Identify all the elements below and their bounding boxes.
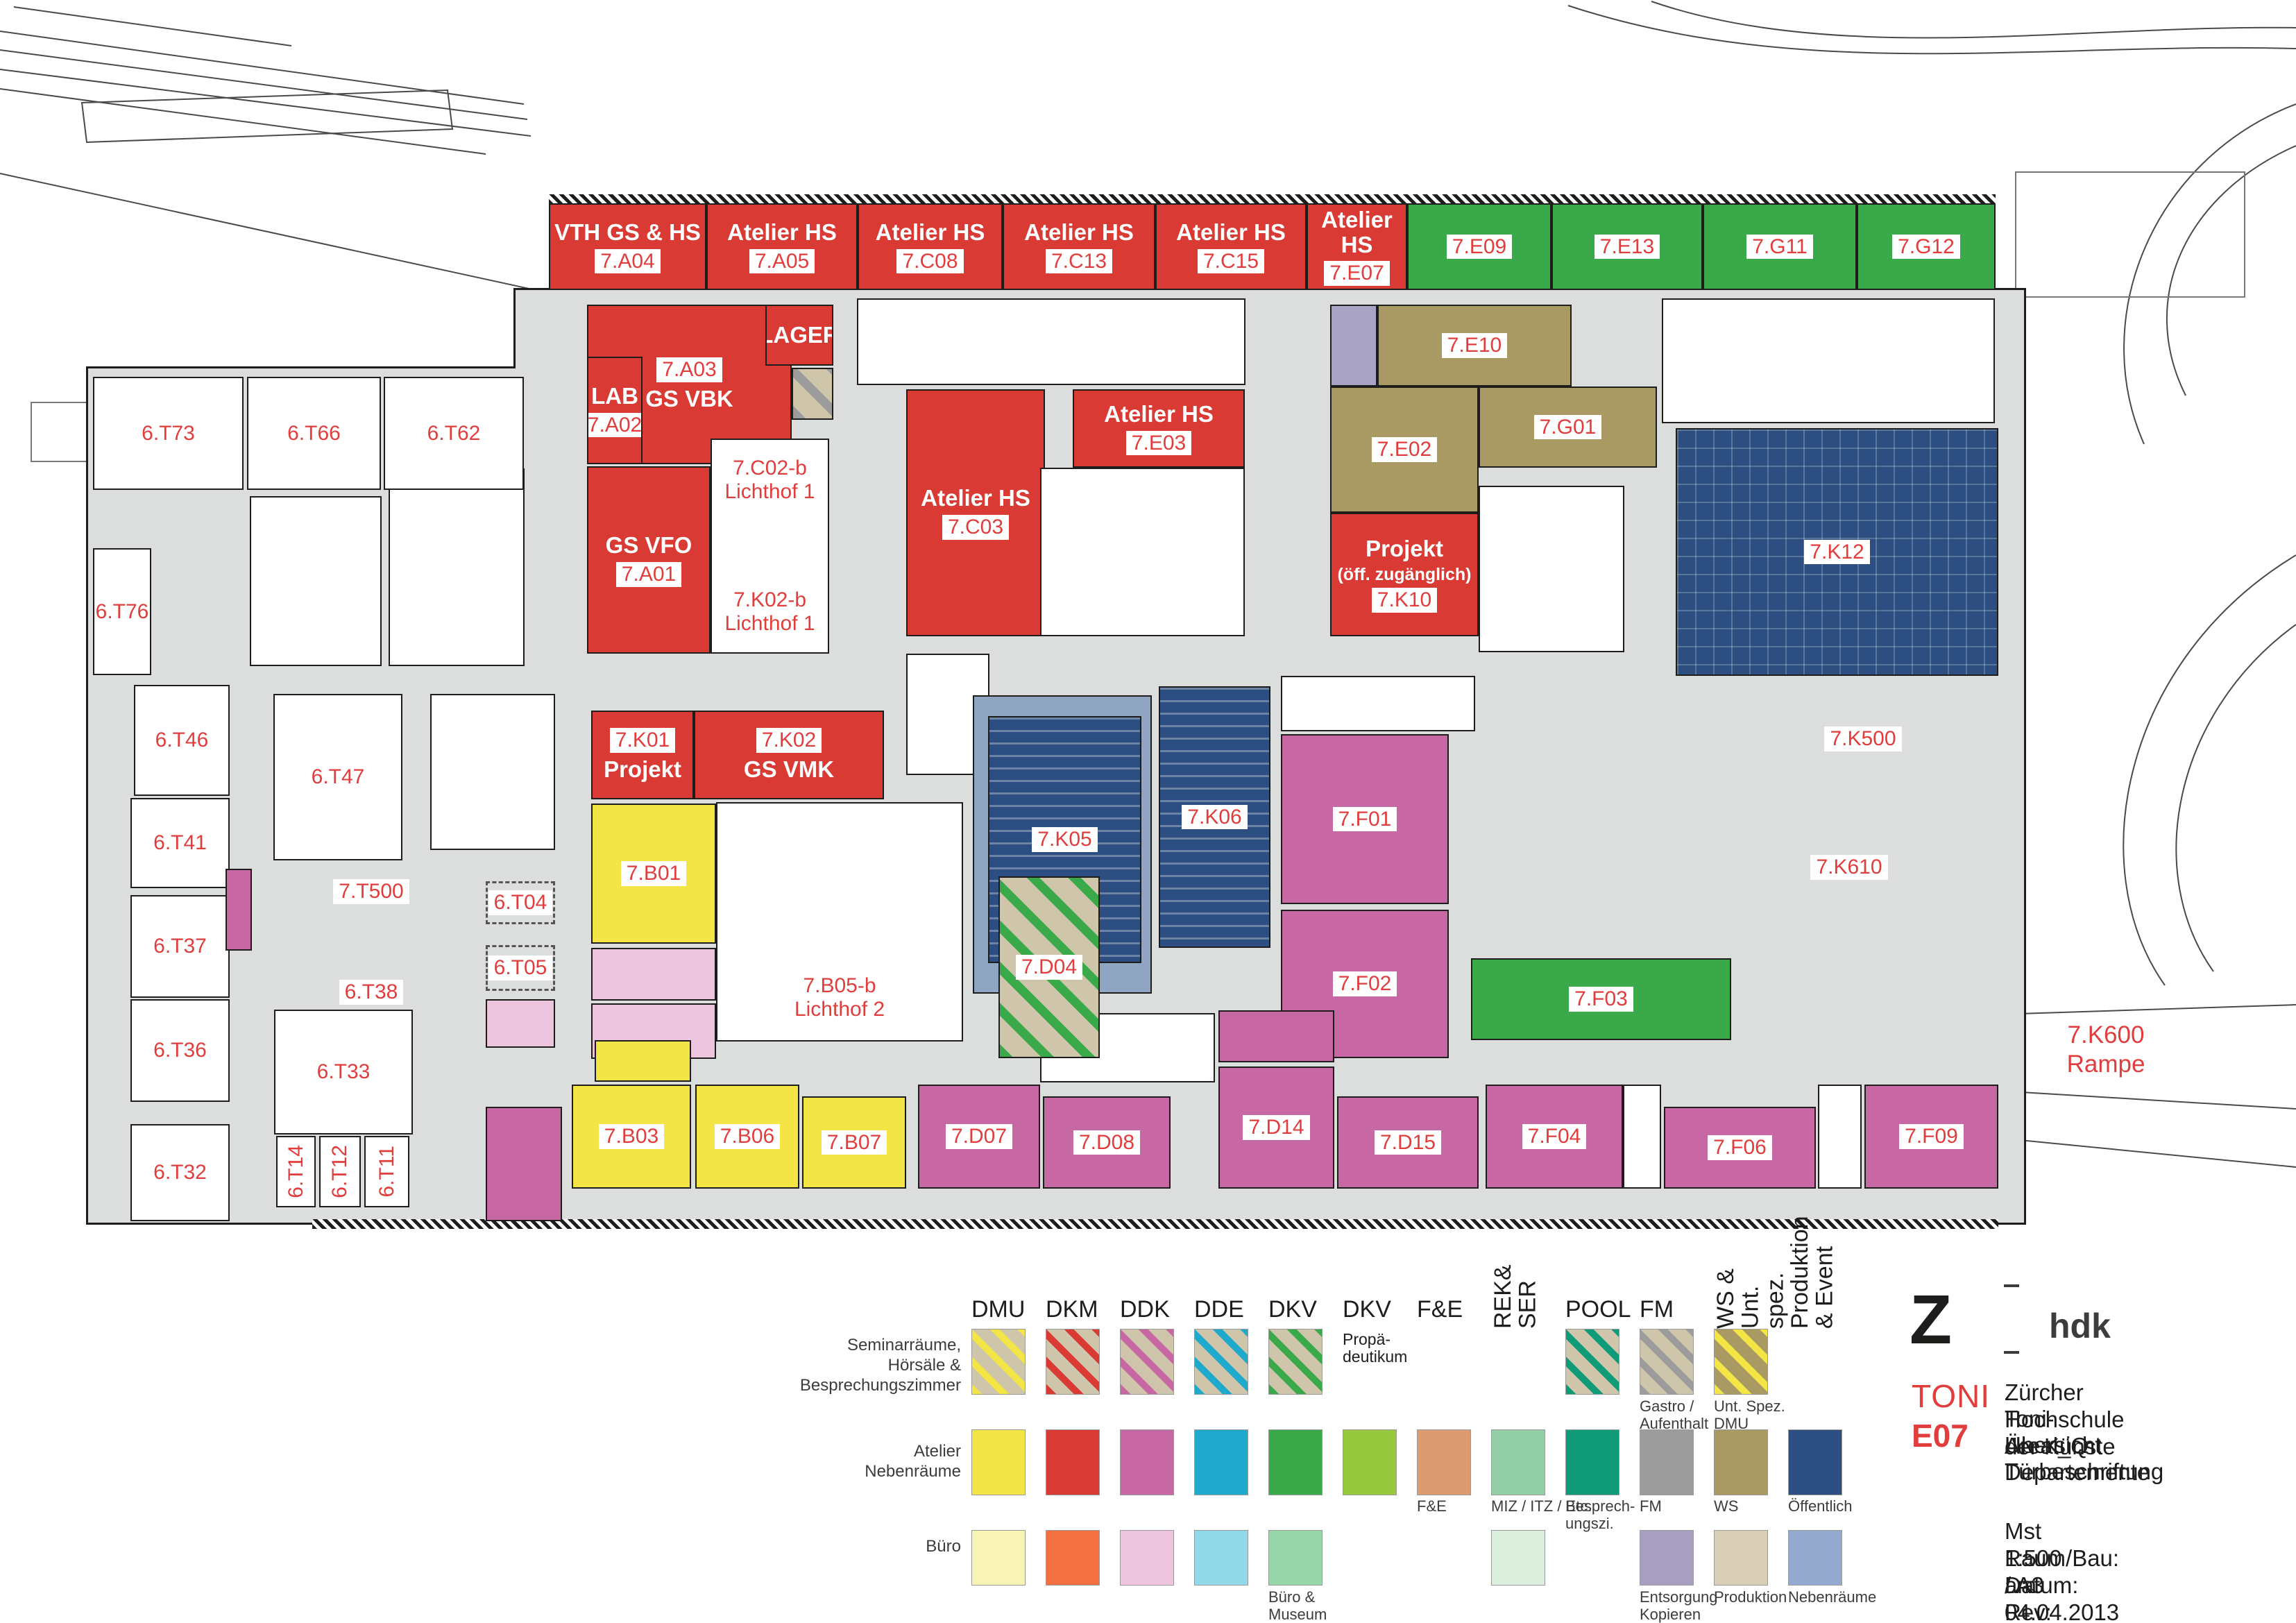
room-7-k600: 7.K600 Rampe xyxy=(2012,1010,2200,1089)
room-number: 6.T04 xyxy=(488,890,553,915)
legend-swatch-atelier xyxy=(1640,1429,1694,1495)
room-6-t05: 6.T05 xyxy=(486,945,555,991)
legend-swatch-buero xyxy=(1046,1530,1100,1586)
legend-header: POOL xyxy=(1565,1298,1631,1323)
room-lager: LAGER xyxy=(765,305,833,366)
legend-swatch-sub: Öffentlich xyxy=(1788,1497,1892,1515)
legend-swatch-striped xyxy=(971,1329,1026,1395)
room-name: Projekt xyxy=(1366,536,1443,561)
room-number: 6.T12 xyxy=(328,1139,352,1204)
unlabeled-room xyxy=(591,948,716,1001)
room-7-d08: 7.D08 xyxy=(1043,1096,1171,1189)
legend-swatch-atelier xyxy=(1343,1429,1397,1495)
room-7-t500: 7.T500 xyxy=(291,867,451,916)
unlabeled-room xyxy=(1330,305,1377,386)
plan-subtitle-2: Türbeschriftung xyxy=(2005,1459,2163,1486)
room-7-e10: 7.E10 xyxy=(1377,305,1572,386)
room-number: 7.B03 xyxy=(599,1124,664,1149)
room-name: LAB xyxy=(591,384,638,409)
room-number: 7.B05-b Lichthof 2 xyxy=(789,974,890,1021)
room-number: 7.E03 xyxy=(1126,431,1191,456)
room-number: 7.G12 xyxy=(1892,235,1960,260)
legend-swatch-buero xyxy=(1714,1530,1768,1586)
legend-swatch-buero xyxy=(1491,1530,1545,1586)
room-number: 7.B07 xyxy=(822,1130,887,1155)
room-7-b05-b: 7.B05-b Lichthof 2 xyxy=(716,965,963,1030)
room-6-t11: 6.T11 xyxy=(364,1136,409,1207)
legend-swatch-atelier xyxy=(1565,1429,1619,1495)
zhdk-logo: Z xyxy=(1910,1292,1949,1348)
room-7-f09: 7.F09 xyxy=(1864,1085,1998,1189)
room-number: 6.T73 xyxy=(136,421,201,446)
room-number: 6.T33 xyxy=(312,1060,376,1085)
room-7-k12: 7.K12 xyxy=(1676,428,1998,676)
room-number: 7.F03 xyxy=(1569,987,1633,1012)
room-7-e03: Atelier HS7.E03 xyxy=(1073,389,1245,468)
room-number: 7.G01 xyxy=(1534,415,1602,440)
room-6-t47: 6.T47 xyxy=(273,694,402,860)
room-name: 7.K600 Rampe xyxy=(2067,1021,2145,1079)
room-7-g11: 7.G11 xyxy=(1703,203,1857,290)
room-6-t76: 6.T76 xyxy=(93,548,151,675)
room-7-f01: 7.F01 xyxy=(1281,734,1449,904)
room-number: 7.E02 xyxy=(1372,437,1437,462)
room-number: 7.G11 xyxy=(1746,235,1813,260)
legend-header: DKM xyxy=(1046,1298,1098,1323)
room-7-e02: 7.E02 xyxy=(1330,386,1479,513)
room-number: 7.C02-b Lichthof 1 xyxy=(719,456,820,504)
room-name: GS VMK xyxy=(744,757,834,782)
room-number: 7.D08 xyxy=(1073,1130,1140,1155)
core-room xyxy=(1662,298,1995,423)
room-7-a04: VTH GS & HS7.A04 xyxy=(549,203,706,290)
room-name: GS VFO xyxy=(606,533,692,558)
room-7-g01: 7.G01 xyxy=(1479,386,1657,468)
room-7-a01: GS VFO7.A01 xyxy=(587,466,711,654)
room-7-c13: Atelier HS7.C13 xyxy=(1003,203,1155,290)
legend-swatch-striped xyxy=(1640,1329,1694,1395)
room-name: LAGER xyxy=(765,323,833,348)
room-number: 7.F02 xyxy=(1333,971,1397,996)
room-7-k610: 7.K610 xyxy=(1762,843,1936,892)
room-number: 7.D04 xyxy=(1016,955,1082,980)
room-number: 7.A01 xyxy=(616,562,681,587)
legend-row-label: Atelier Nebenräume xyxy=(732,1442,961,1482)
room-number: 7.F01 xyxy=(1333,807,1397,832)
room-number: 7.E09 xyxy=(1447,235,1512,260)
legend-header: DKV xyxy=(1268,1298,1317,1323)
legend-swatch-striped xyxy=(1565,1329,1619,1395)
room-6-t38: 6.T38 xyxy=(291,968,451,1017)
room-number: 7.A02 xyxy=(587,413,643,438)
room-number: 7.K12 xyxy=(1804,540,1869,565)
room-6-t37: 6.T37 xyxy=(130,895,230,998)
core-room xyxy=(1281,676,1475,731)
room-number: 6.T76 xyxy=(93,600,151,624)
room-7-f06: 7.F06 xyxy=(1664,1107,1816,1189)
room-7-k10: Projekt(öff. zugänglich)7.K10 xyxy=(1330,513,1479,636)
room-number: 7.T500 xyxy=(333,879,409,904)
room-7-c08: Atelier HS7.C08 xyxy=(858,203,1003,290)
legend-swatch-striped xyxy=(1268,1329,1323,1395)
legend-swatch-atelier xyxy=(1491,1429,1545,1495)
legend-swatch-atelier xyxy=(1788,1429,1842,1495)
room-7-d04: 7.D04 xyxy=(998,876,1100,1058)
legend-header: DDE xyxy=(1194,1298,1244,1323)
legend-header: FM xyxy=(1640,1298,1674,1323)
legend-swatch-striped xyxy=(1120,1329,1174,1395)
legend-row-label: Seminarräume, Hörsäle & Besprechungszimm… xyxy=(732,1336,961,1395)
room-number: 7.C08 xyxy=(896,249,963,274)
room-name: Atelier HS xyxy=(1104,402,1214,427)
legend-swatch-buero xyxy=(1640,1530,1694,1586)
room-6-t46: 6.T46 xyxy=(134,685,230,796)
core-room xyxy=(250,496,382,666)
unlabeled-room xyxy=(595,1040,691,1082)
core-room xyxy=(1818,1085,1862,1189)
core-room xyxy=(430,694,555,850)
room-number: 6.T46 xyxy=(150,728,214,753)
room-number: 7.B06 xyxy=(715,1124,780,1149)
room-6-t62: 6.T62 xyxy=(384,377,524,490)
room-number: 7.A05 xyxy=(749,249,815,274)
room-number: 6.T11 xyxy=(375,1140,400,1203)
room-number: 7.D07 xyxy=(946,1124,1012,1149)
room-7-k02-b: 7.K02-b Lichthof 1 xyxy=(711,583,829,641)
room-7-f04: 7.F04 xyxy=(1486,1085,1623,1189)
legend-swatch-buero xyxy=(1788,1530,1842,1586)
room-number: 7.F04 xyxy=(1522,1124,1587,1149)
room-7-k02: 7.K02GS VMK xyxy=(694,711,884,799)
room-6-t73: 6.T73 xyxy=(93,377,244,490)
room-name: Atelier HS xyxy=(727,220,837,245)
room-number: 7.K05 xyxy=(1032,827,1097,852)
room-number: 7.E13 xyxy=(1595,235,1660,260)
room-7-b01: 7.B01 xyxy=(591,804,716,944)
room-6-t41: 6.T41 xyxy=(130,798,230,888)
floor-code: E07 xyxy=(1912,1417,1968,1454)
room-number: 7.E10 xyxy=(1442,333,1507,358)
unlabeled-room xyxy=(792,368,833,420)
room-name: (öff. zugänglich) xyxy=(1337,566,1471,584)
room-7-b07: 7.B07 xyxy=(802,1096,906,1189)
legend-swatch-atelier xyxy=(1120,1429,1174,1495)
room-name: Atelier HS xyxy=(921,486,1030,511)
unlabeled-room xyxy=(486,1107,562,1221)
railway-tracks xyxy=(0,7,548,293)
unlabeled-room xyxy=(486,999,555,1048)
room-number: 6.T66 xyxy=(282,421,346,446)
room-6-t36: 6.T36 xyxy=(130,999,230,1102)
room-number: 7.K01 xyxy=(610,728,675,753)
room-7-k01: 7.K01Projekt xyxy=(591,711,694,799)
room-7-d15: 7.D15 xyxy=(1337,1096,1479,1189)
room-name: Projekt xyxy=(604,757,681,782)
legend-swatch-striped xyxy=(1714,1329,1768,1395)
room-7-b03: 7.B03 xyxy=(572,1085,691,1189)
room-7-d07: 7.D07 xyxy=(918,1085,1040,1189)
room-name: Atelier HS xyxy=(1308,207,1406,257)
legend-swatch-buero xyxy=(1120,1530,1174,1586)
dash-icon xyxy=(2004,1284,2019,1287)
unlabeled-room xyxy=(1218,1010,1334,1062)
room-7-e13: 7.E13 xyxy=(1551,203,1703,290)
legend-swatch-atelier xyxy=(1194,1429,1248,1495)
core-room xyxy=(1623,1085,1661,1189)
room-6-t32: 6.T32 xyxy=(130,1124,230,1221)
legend-header: REK& SER xyxy=(1491,1225,1540,1329)
room-number: 7.F06 xyxy=(1708,1135,1772,1160)
room-name: VTH GS & HS xyxy=(554,220,701,245)
core-room xyxy=(389,468,525,666)
room-6-t66: 6.T66 xyxy=(247,377,381,490)
room-number: 7.C03 xyxy=(942,515,1009,540)
legend-header: DDK xyxy=(1120,1298,1170,1323)
room-number: 7.E07 xyxy=(1324,261,1389,286)
room-name: Atelier HS xyxy=(1024,220,1134,245)
room-name: Atelier HS xyxy=(876,220,985,245)
room-number: 7.K500 xyxy=(1824,726,1901,751)
legend-swatch-buero xyxy=(971,1530,1026,1586)
room-number: 7.D14 xyxy=(1243,1115,1309,1140)
room-7-g12: 7.G12 xyxy=(1857,203,1996,290)
room-number: 7.K10 xyxy=(1372,588,1437,613)
room-number: 7.A03 xyxy=(656,357,722,382)
legend-swatch-buero xyxy=(1268,1530,1323,1586)
legend-swatch-atelier xyxy=(1417,1429,1471,1495)
legend-swatch-sub: Nebenräume xyxy=(1788,1588,1892,1606)
legend-header-sub: Propä- deutikum xyxy=(1343,1331,1407,1366)
brand-hdk: hdk xyxy=(2049,1306,2111,1346)
site-code: TONI xyxy=(1912,1377,1990,1415)
room-number: 7.D15 xyxy=(1375,1130,1441,1155)
room-7-k06: 7.K06 xyxy=(1159,686,1270,948)
room-number: 6.T41 xyxy=(148,831,212,856)
dash-icon xyxy=(2004,1351,2019,1354)
room-number: 7.A04 xyxy=(595,249,660,274)
legend-swatch-atelier xyxy=(1714,1429,1768,1495)
room-number: 6.T37 xyxy=(148,934,212,959)
unlabeled-room xyxy=(226,869,252,951)
room-7-d14: 7.D14 xyxy=(1218,1067,1334,1189)
room-number: 6.T14 xyxy=(284,1139,309,1204)
legend-row-label: Büro xyxy=(732,1537,961,1557)
room-7-f03: 7.F03 xyxy=(1471,958,1731,1040)
legend-swatch-sub: Büro & Museum xyxy=(1268,1588,1372,1623)
room-6-t04: 6.T04 xyxy=(486,881,555,924)
legend-swatch-sub: Unt. Spez. DMU xyxy=(1714,1397,1818,1433)
facade-hatch-top xyxy=(549,194,1996,204)
room-6-t14: 6.T14 xyxy=(276,1136,316,1207)
legend-header: DMU xyxy=(971,1298,1025,1323)
room-7-c02-b: 7.C02-b Lichthof 1 xyxy=(711,451,829,509)
core-room xyxy=(857,298,1245,385)
room-number: 7.K610 xyxy=(1810,855,1887,880)
room-number: 7.K02 xyxy=(756,728,822,753)
legend-swatch-atelier xyxy=(1268,1429,1323,1495)
legend-header: Produktion & Event xyxy=(1788,1225,1837,1329)
legend-swatch-striped xyxy=(1194,1329,1248,1395)
unlabeled-room xyxy=(1040,468,1245,636)
room-7-c03: Atelier HS7.C03 xyxy=(906,389,1045,636)
room-7-e09: 7.E09 xyxy=(1407,203,1551,290)
room-number: 7.C15 xyxy=(1198,249,1264,274)
room-7-e07: Atelier HS7.E07 xyxy=(1307,203,1407,290)
room-number: 6.T62 xyxy=(422,421,486,446)
room-name: GS VBK xyxy=(645,386,733,411)
room-7-a05: Atelier HS7.A05 xyxy=(706,203,858,290)
room-number: 7.F09 xyxy=(1899,1124,1964,1149)
room-number: 7.B01 xyxy=(621,861,686,886)
room-number: 6.T38 xyxy=(339,980,404,1005)
room-6-t33: 6.T33 xyxy=(274,1010,413,1135)
room-number: 7.K02-b Lichthof 1 xyxy=(719,588,820,636)
room-number: 7.K06 xyxy=(1182,805,1247,830)
legend-header: WS & Unt. spez. xyxy=(1714,1225,1788,1329)
room-6-t12: 6.T12 xyxy=(319,1136,361,1207)
core-room xyxy=(1479,486,1624,652)
room-number: 6.T32 xyxy=(148,1160,212,1185)
room-number: 6.T05 xyxy=(488,955,553,980)
legend-header: F&E xyxy=(1417,1298,1463,1323)
room-name: Atelier HS xyxy=(1176,220,1286,245)
room-number: 6.T36 xyxy=(148,1038,212,1063)
room-7-a02: LAB7.A02 xyxy=(587,357,643,464)
room-7-c15: Atelier HS7.C15 xyxy=(1155,203,1307,290)
room-7-k500: 7.K500 xyxy=(1776,715,1950,763)
floorplan-canvas: VTH GS & HS7.A04Atelier HS7.A05Atelier H… xyxy=(0,0,2296,1623)
room-7-b06: 7.B06 xyxy=(695,1085,799,1189)
legend-swatch-atelier xyxy=(971,1429,1026,1495)
room-number: 7.C13 xyxy=(1046,249,1112,274)
legend-swatch-atelier xyxy=(1046,1429,1100,1495)
legend-swatch-striped xyxy=(1046,1329,1100,1395)
room-number: 6.T47 xyxy=(306,765,371,790)
plan-revision: Rev: 06.02.2014 xyxy=(2005,1599,2119,1623)
legend-swatch-buero xyxy=(1194,1530,1248,1586)
legend-header: DKV xyxy=(1343,1298,1391,1323)
